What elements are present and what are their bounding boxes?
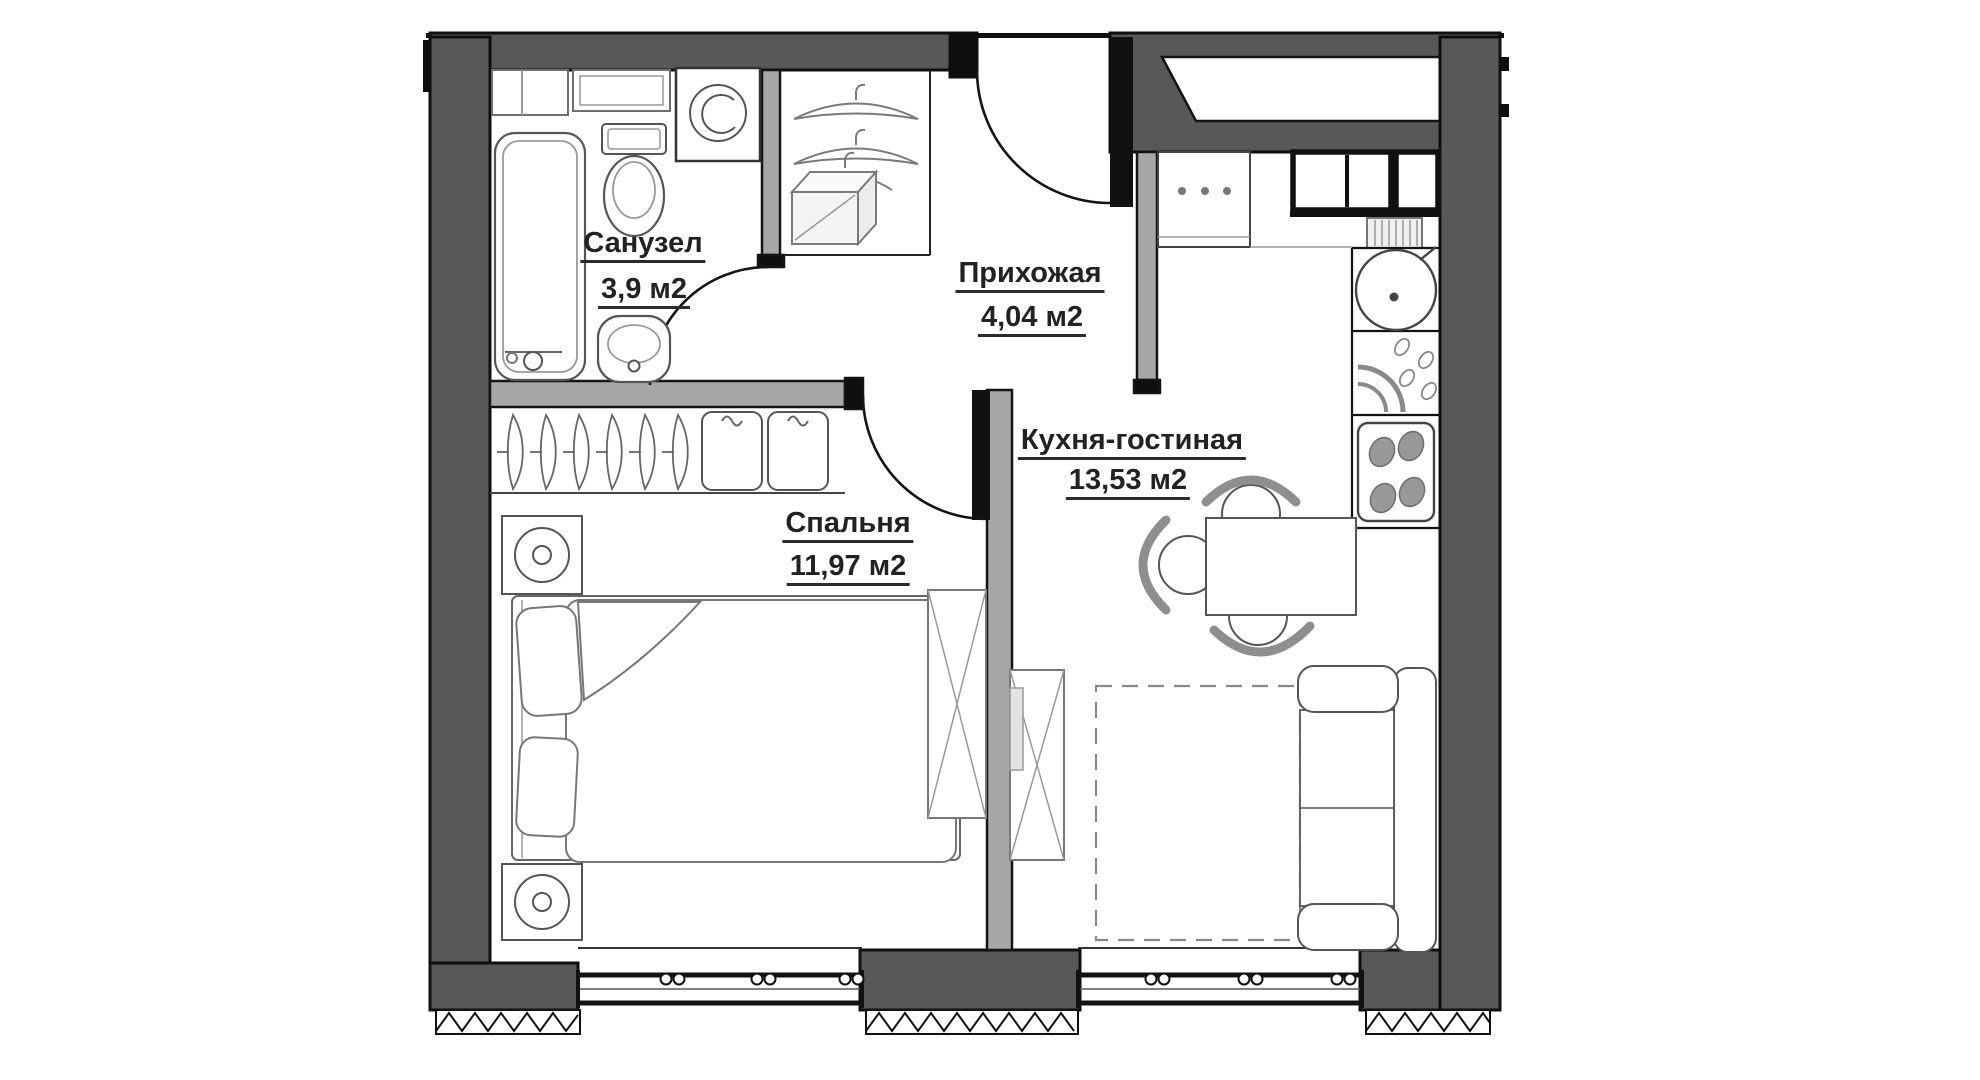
hanger-icon (794, 149, 918, 165)
entry-door-arc (977, 70, 1110, 203)
room-label-bedroom: Спальня (782, 506, 913, 543)
living-room (1010, 480, 1436, 952)
cooktop (1358, 423, 1434, 521)
room-label-bathroom: Санузел (580, 226, 705, 263)
room-area-bedroom: 11,97 м2 (787, 549, 910, 586)
bathroom-right-wall (762, 70, 780, 255)
right-wall-tick-1 (1500, 57, 1509, 71)
kitchen-bay-window (1162, 57, 1443, 121)
right-wall-tick-2 (1500, 104, 1509, 117)
bedroom-door-arc (863, 395, 987, 519)
sofa-armrest (1298, 904, 1398, 950)
room-area-kitchen-living: 13,53 м2 (1066, 463, 1190, 500)
bottom-pier-middle (860, 950, 1080, 1010)
tv-unit (1010, 670, 1064, 860)
floor-plan-drawing (0, 0, 1980, 1080)
bathtub (495, 133, 585, 380)
entry-door-leaf (1110, 37, 1133, 207)
tv-screen (1010, 688, 1023, 770)
floor-plan: Санузел 3,9 м2 Прихожая 4,04 м2 Спальня … (0, 0, 1980, 1080)
closet-contents (792, 85, 918, 244)
left-wall (430, 37, 490, 1010)
hallway-kitchen-partition (1137, 152, 1157, 380)
bath-shelf-1 (492, 70, 568, 115)
room-area-hallway: 4,04 м2 (978, 300, 1086, 337)
entry-left-post (950, 33, 977, 77)
sofa (1298, 666, 1436, 952)
bathroom-bedroom-wall-cap (845, 378, 863, 409)
bathroom-sink (598, 316, 670, 382)
bathroom-right-wall-cap (758, 255, 784, 267)
pillow (515, 737, 578, 838)
dish-rack (1358, 336, 1439, 412)
bedroom-window (578, 948, 864, 1008)
nightstand-bottom (502, 864, 582, 940)
bottom-left-corner-wall (430, 963, 578, 1010)
nightstand-top (502, 516, 582, 594)
room-label-hallway: Прихожая (955, 256, 1104, 293)
bathroom-bedroom-wall (490, 381, 845, 407)
bed (512, 596, 960, 862)
bathroom (492, 68, 760, 382)
kitchen-sink (1356, 247, 1436, 330)
bedroom-wardrobe-unit (928, 590, 986, 818)
storage-basket (792, 172, 876, 244)
room-area-bathroom: 3,9 м2 (598, 272, 690, 309)
pillow (515, 605, 582, 717)
living-room-window (1078, 948, 1362, 1008)
kitchen (1158, 152, 1440, 528)
right-wall (1440, 37, 1500, 1010)
sofa-armrest (1298, 666, 1398, 712)
wardrobe-boxes (702, 412, 828, 490)
exterior-hatch (436, 1010, 1490, 1034)
bottom-pier-right (1360, 950, 1440, 1010)
room-label-kitchen-living: Кухня-гостиная (1018, 423, 1246, 460)
hallway-kitchen-partition-cap (1134, 380, 1160, 393)
sofa-back (1394, 668, 1436, 952)
wall-cabinets (1290, 152, 1439, 214)
toilet (602, 124, 666, 236)
top-wall-left (430, 33, 950, 70)
dining-table (1206, 518, 1356, 615)
bedroom-door-leaf (972, 390, 990, 520)
left-wall-step (423, 40, 431, 92)
rug (1096, 686, 1300, 940)
wardrobe-hangers (497, 415, 688, 489)
bedroom-living-partition (987, 390, 1012, 950)
hanger-icon (794, 104, 918, 120)
fridge-unit (1367, 218, 1422, 248)
bedroom (490, 412, 986, 940)
